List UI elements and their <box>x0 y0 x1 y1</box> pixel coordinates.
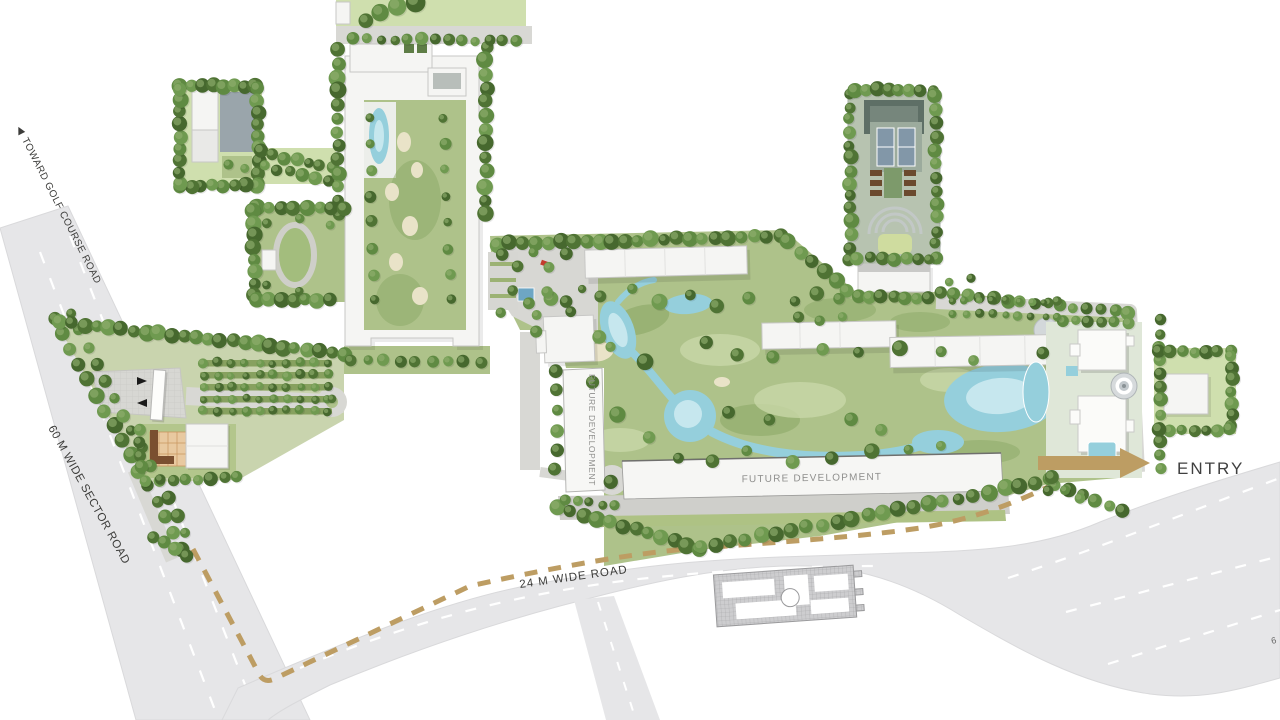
site-plan-svg: ◀ TOWARD GOLF COURSE ROAD 60 M WIDE SECT… <box>0 0 1280 720</box>
clubhouse <box>535 315 598 367</box>
future-development-vertical-label: FUTURE DEVELOPMENT <box>587 374 597 486</box>
event-lawn <box>878 234 912 254</box>
amenity-pool <box>1023 362 1049 422</box>
right-building-strip-1 <box>762 321 900 355</box>
existing-building-footprint <box>713 565 864 627</box>
mid-building-strip <box>585 246 751 284</box>
tower-1 <box>1078 330 1126 370</box>
master-plan-image: ◀ TOWARD GOLF COURSE ROAD 60 M WIDE SECT… <box>0 0 1280 720</box>
east-green-parcel <box>1164 374 1211 417</box>
east-parcel-building <box>1164 374 1208 414</box>
entry-label: ENTRY <box>1177 459 1244 478</box>
